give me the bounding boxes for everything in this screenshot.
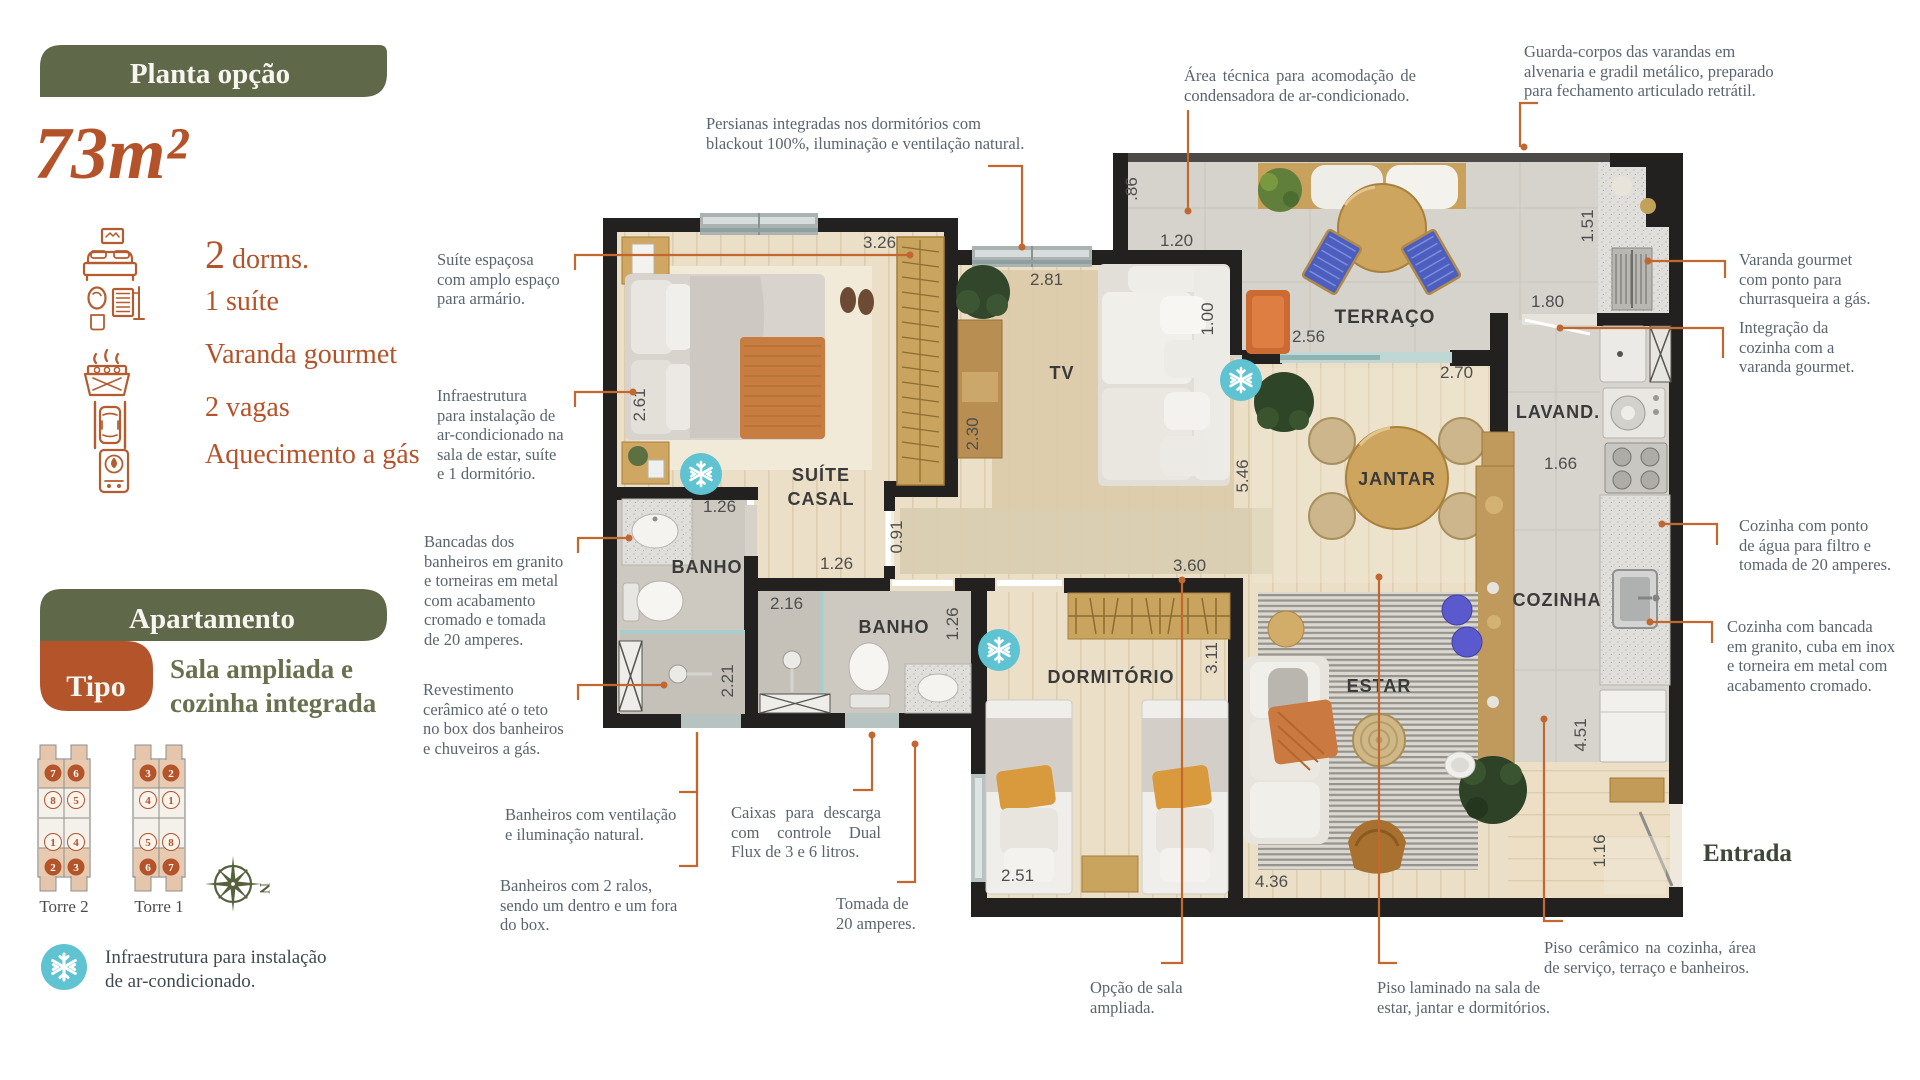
svg-text:5: 5 <box>73 795 79 807</box>
svg-text:3: 3 <box>145 768 151 780</box>
svg-text:TV: TV <box>1049 363 1074 383</box>
svg-text:2.16: 2.16 <box>770 594 803 613</box>
svg-text:1.00: 1.00 <box>1198 302 1217 335</box>
svg-text:1: 1 <box>50 837 56 849</box>
svg-text:6: 6 <box>145 862 151 874</box>
svg-text:1.16: 1.16 <box>1590 834 1609 867</box>
svg-text:3.11: 3.11 <box>1202 642 1221 674</box>
svg-text:5: 5 <box>145 837 151 849</box>
svg-text:3.26: 3.26 <box>863 233 896 252</box>
svg-text:2: 2 <box>50 862 56 874</box>
svg-text:2: 2 <box>168 768 174 780</box>
svg-text:Entrada: Entrada <box>1703 840 1792 867</box>
svg-text:N: N <box>256 883 272 894</box>
svg-text:7: 7 <box>168 862 174 874</box>
svg-text:.86: .86 <box>1122 177 1141 201</box>
svg-text:LAVAND.: LAVAND. <box>1516 402 1600 422</box>
svg-text:1.20: 1.20 <box>1160 231 1193 250</box>
svg-text:1: 1 <box>168 795 174 807</box>
svg-text:Torre 1: Torre 1 <box>134 897 183 916</box>
svg-text:Tipo: Tipo <box>66 670 126 703</box>
svg-text:73m²: 73m² <box>34 113 190 195</box>
svg-text:4: 4 <box>145 795 151 807</box>
svg-text:2.56: 2.56 <box>1292 327 1325 346</box>
svg-text:2.21: 2.21 <box>718 664 737 697</box>
svg-text:1.26: 1.26 <box>703 497 736 516</box>
svg-text:2.30: 2.30 <box>963 417 982 450</box>
svg-text:JANTAR: JANTAR <box>1358 469 1436 489</box>
svg-text:COZINHA: COZINHA <box>1513 590 1602 610</box>
svg-text:DORMITÓRIO: DORMITÓRIO <box>1048 666 1175 687</box>
svg-text:7: 7 <box>50 768 56 780</box>
svg-text:1.51: 1.51 <box>1578 209 1597 242</box>
svg-text:5.46: 5.46 <box>1233 459 1252 492</box>
svg-text:4: 4 <box>73 837 79 849</box>
svg-text:Planta opção: Planta opção <box>130 58 290 90</box>
svg-text:2.70: 2.70 <box>1440 363 1473 382</box>
svg-text:TERRAÇO: TERRAÇO <box>1335 307 1436 328</box>
svg-text:4.51: 4.51 <box>1571 718 1590 751</box>
svg-text:1.26: 1.26 <box>943 607 962 640</box>
svg-text:3: 3 <box>73 862 79 874</box>
svg-text:Torre 2: Torre 2 <box>39 897 88 916</box>
svg-text:1.66: 1.66 <box>1544 454 1577 473</box>
svg-text:2.51: 2.51 <box>1001 866 1034 885</box>
svg-text:BANHO: BANHO <box>672 557 743 577</box>
svg-text:1.26: 1.26 <box>820 554 853 573</box>
svg-text:0.91: 0.91 <box>887 520 906 553</box>
svg-text:8: 8 <box>168 837 174 849</box>
svg-text:4.36: 4.36 <box>1255 872 1288 891</box>
svg-text:BANHO: BANHO <box>859 617 930 637</box>
svg-text:1.80: 1.80 <box>1531 292 1564 311</box>
svg-text:SUÍTE: SUÍTE <box>792 464 850 485</box>
svg-text:CASAL: CASAL <box>788 489 855 509</box>
svg-text:3.60: 3.60 <box>1173 556 1206 575</box>
svg-text:2.81: 2.81 <box>1030 270 1063 289</box>
svg-text:6: 6 <box>73 768 79 780</box>
svg-text:Apartamento: Apartamento <box>129 603 295 635</box>
svg-text:8: 8 <box>50 795 56 807</box>
